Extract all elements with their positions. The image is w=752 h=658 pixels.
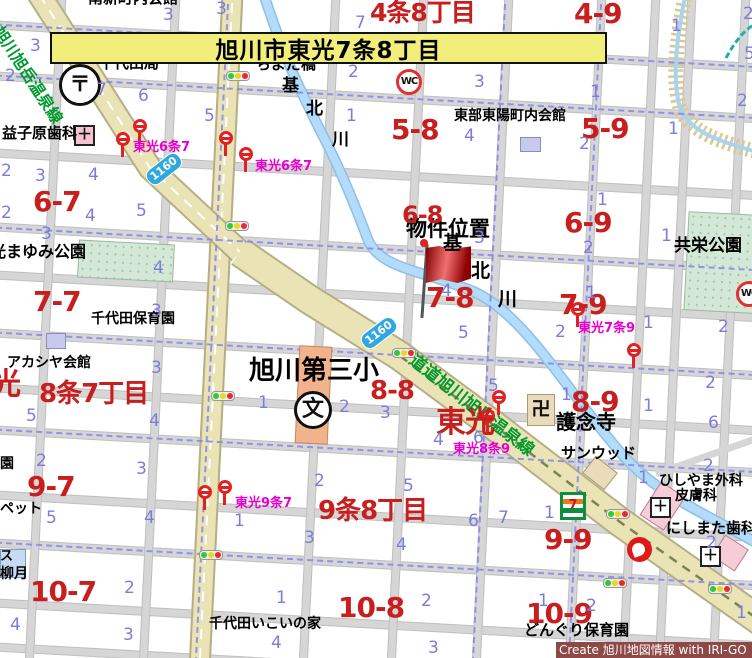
lot-number: 3 [151, 303, 162, 320]
lot-number: 3 [304, 530, 315, 547]
community-hall-building [520, 137, 541, 152]
lot-number: 2 [583, 240, 594, 257]
lot-number: 2 [579, 136, 590, 153]
lot-number: 4 [464, 128, 475, 145]
lot-number: 1 [638, 470, 649, 487]
lot-number: 5 [744, 46, 752, 63]
lot-number: 3 [41, 226, 52, 243]
district-label: 9-7 [27, 473, 75, 502]
traffic-light-icon [708, 584, 732, 594]
traffic-light-icon [226, 71, 250, 81]
hospital-pink-icon: ＋ [74, 125, 95, 146]
lot-number: 3 [380, 405, 391, 422]
place-label: 千代田いこいの家 [209, 617, 321, 631]
lot-number: 5 [488, 378, 499, 395]
lot-number: 6 [473, 430, 484, 447]
place-label: 東部東陽町内会館 [454, 109, 566, 123]
acacia-hall-building [46, 333, 66, 349]
traffic-light-icon [225, 221, 249, 231]
district-label: 10-7 [30, 578, 96, 607]
lot-number: 3 [474, 230, 485, 247]
lot-number: 4 [149, 413, 160, 430]
lot-number: 4 [153, 260, 164, 277]
place-label: ひしやま外科 [659, 474, 743, 488]
lot-number: 1 [538, 593, 549, 610]
lot-number: 2 [718, 319, 729, 336]
district-label: 9条8丁目 [318, 498, 427, 525]
lot-number: 5 [204, 108, 215, 125]
district-label: 9-9 [544, 526, 592, 555]
place-label: 旭川第三小 [249, 358, 379, 385]
lot-number: 1 [736, 605, 747, 622]
lot-number: 1 [643, 398, 654, 415]
bus-stop-label: 東光9条7 [235, 497, 292, 510]
bus-stop-label: 東光6条7 [255, 160, 312, 173]
place-label: 基 [282, 78, 299, 95]
map-viewport[interactable]: 物件位置 旭川市東光7条8丁目 Create 旭川地図情報 with IRI-G… [0, 0, 752, 658]
lot-number: 5 [46, 510, 57, 527]
lot-number: 2 [339, 399, 350, 416]
place-label: どんぐり保育園 [524, 623, 629, 638]
lot-number: 3 [216, 1, 227, 18]
red-poi-icon [627, 537, 652, 562]
place-label: 柳月 [0, 567, 28, 581]
place-label: 共栄公園 [674, 238, 742, 255]
lot-number: 3 [163, 7, 174, 24]
district-label: 10-8 [338, 594, 404, 623]
place-label: 護念寺 [556, 412, 616, 432]
lot-number: 1 [234, 513, 245, 530]
lot-number: 2 [421, 593, 432, 610]
post-office-icon: 〒 [59, 64, 101, 106]
lot-number: 2 [36, 453, 47, 470]
lot-number: 4 [85, 208, 96, 225]
district-label: 4-9 [574, 0, 622, 29]
lot-number: 2 [737, 93, 748, 110]
place-label: 北 [306, 101, 323, 118]
place-label: サンウッド [561, 446, 636, 461]
district-label: 8条7丁目 [39, 381, 148, 408]
bus-stop-icon [218, 480, 231, 505]
lot-number: 2 [743, 6, 752, 23]
bus-stop-label: 東光6条7 [133, 141, 190, 154]
district-label: 光 [0, 370, 20, 401]
lot-number: 1 [643, 315, 654, 332]
place-label: 川 [498, 290, 517, 309]
lot-number: 2 [586, 598, 597, 615]
lot-number: 3 [30, 38, 41, 55]
lot-number: 5 [403, 478, 414, 495]
lot-number: 1 [544, 505, 555, 522]
lot-number: 2 [124, 580, 135, 597]
bus-stop-label: 東光7条9 [578, 322, 635, 335]
lot-number: 5 [136, 203, 147, 220]
lot-number: 7 [355, 15, 366, 32]
district-label: 4条8丁目 [370, 0, 475, 26]
lot-number: 1 [258, 395, 269, 412]
lot-number: 1 [590, 84, 601, 101]
traffic-light-icon [603, 578, 627, 588]
district-label: 6-9 [564, 209, 612, 238]
lot-number: 4 [271, 635, 282, 652]
lot-number: 3 [123, 627, 134, 644]
lot-number: 7 [96, 82, 107, 99]
lot-number: 1 [276, 590, 287, 607]
lot-number: 2 [314, 473, 325, 490]
traffic-light-icon [199, 550, 223, 560]
bus-stop-icon [627, 343, 640, 368]
lot-number: 2 [5, 68, 16, 85]
district-label: 東光 [436, 408, 494, 439]
lot-number: 3 [35, 168, 46, 185]
wc-icon: WC [396, 69, 422, 95]
lot-number: 4 [433, 432, 444, 449]
bus-stop-icon [239, 147, 252, 172]
lot-number: 4 [441, 283, 452, 300]
district-label: 6-8 [402, 203, 442, 227]
place-label: アカシヤ会館 [7, 356, 91, 370]
lot-number: 2 [705, 375, 716, 392]
district-label: 6-7 [33, 188, 81, 217]
lot-number: 1 [671, 18, 682, 35]
district-label: 5-8 [391, 116, 439, 145]
place-label: ス [0, 550, 13, 563]
lot-number: 6 [708, 415, 719, 432]
lot-number: 2 [555, 324, 566, 341]
lot-number: 6 [138, 88, 149, 105]
place-label: 園 [0, 457, 14, 471]
place-label: 千代田保育園 [91, 312, 175, 326]
lot-number: 2 [703, 458, 714, 475]
place-label: 皮膚科 [675, 489, 717, 503]
district-label: 7-9 [559, 291, 607, 320]
traffic-light-icon [606, 509, 630, 519]
place-label: 北 [471, 262, 490, 281]
place-label: 川 [332, 132, 349, 149]
lot-number: 4 [10, 617, 21, 634]
lot-number: 1 [668, 121, 679, 138]
hospital-icon: ＋ [650, 497, 671, 518]
title-banner: 旭川市東光7条8丁目 [50, 32, 607, 64]
lot-number: 3 [474, 74, 485, 91]
school-symbol-icon: 文 [294, 391, 332, 429]
credit-bar: Create 旭川地図情報 with IRI-GO [556, 642, 752, 658]
temple-icon: 卍 [527, 394, 555, 426]
lot-number: 1 [561, 387, 572, 404]
lot-number: 7 [498, 510, 509, 527]
lot-number: 1 [346, 108, 357, 125]
lot-number: 1 [597, 192, 608, 209]
lot-number: 1 [586, 285, 597, 302]
district-label: 7-7 [33, 288, 81, 317]
lot-number: 4 [396, 537, 407, 554]
bus-stop-icon [116, 132, 129, 157]
lot-number: 2 [1, 205, 12, 222]
traffic-light-icon [392, 348, 416, 358]
lot-number: 6 [468, 513, 479, 530]
lot-number: 3 [151, 360, 162, 377]
convenience-store-icon: 7 [560, 492, 586, 520]
lot-number: 2 [348, 64, 359, 81]
lot-number: 1 [661, 228, 672, 245]
lot-number: 5 [26, 408, 37, 425]
lot-number: 5 [458, 325, 469, 342]
place-label: 益子原歯科 [2, 126, 77, 141]
lot-number: 2 [706, 535, 717, 552]
lot-number: 4 [144, 510, 155, 527]
bus-stop-icon [198, 485, 211, 510]
place-label: ペット [0, 502, 42, 516]
lot-number: 3 [136, 461, 147, 478]
place-label: 光まゆみ公園 [0, 244, 86, 260]
place-label: 基 [443, 234, 462, 253]
lot-number: 4 [88, 167, 99, 184]
traffic-light-icon [211, 391, 235, 401]
bus-stop-icon [219, 131, 232, 156]
lot-number: 2 [1, 163, 12, 180]
lot-number: 3 [428, 640, 439, 657]
